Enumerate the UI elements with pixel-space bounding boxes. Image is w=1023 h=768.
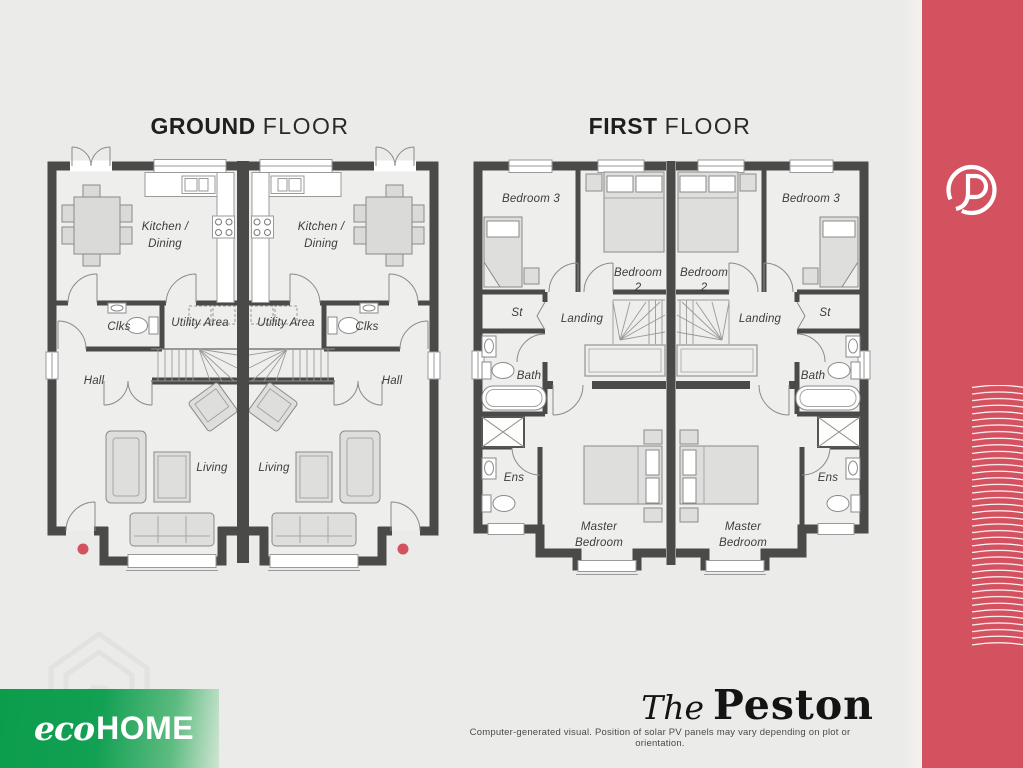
room-label-hall: Hall bbox=[84, 375, 105, 387]
ground-floor-right-unit bbox=[245, 147, 441, 571]
room-label-utility: Utility Area bbox=[257, 317, 315, 329]
room-label-kitchen: Kitchen / bbox=[298, 221, 346, 233]
room-label-master: Bedroom bbox=[719, 537, 767, 549]
room-label-kitchen: Dining bbox=[148, 238, 182, 250]
room-label-bath: Bath bbox=[801, 370, 825, 382]
disclaimer-text: Computer-generated visual. Position of s… bbox=[445, 727, 875, 749]
room-label-living: Living bbox=[196, 462, 228, 474]
first-floor-right-unit bbox=[676, 160, 870, 575]
party-wall bbox=[237, 161, 249, 563]
room-label-bedroom3: Bedroom 3 bbox=[782, 193, 840, 205]
marker-dot-right bbox=[398, 544, 409, 555]
room-label-landing: Landing bbox=[739, 313, 782, 325]
room-label-kitchen: Kitchen / bbox=[142, 221, 190, 233]
room-label-clks: Clks bbox=[107, 321, 130, 333]
ground-floor-plan: Kitchen / Dining Clks Utility Area Hall … bbox=[40, 140, 452, 580]
room-label-living: Living bbox=[258, 462, 290, 474]
developer-logo-icon bbox=[949, 167, 995, 213]
room-label-st: St bbox=[511, 307, 523, 319]
wave-pattern bbox=[972, 385, 1023, 648]
room-label-bedroom2: 2 bbox=[700, 282, 708, 294]
first-floor-plan: Bedroom 3 Bedroom 2 St Landing Bath Ens … bbox=[463, 140, 880, 580]
house-type-name-prefix: The bbox=[641, 688, 704, 727]
room-label-ens: Ens bbox=[818, 472, 838, 484]
room-label-master: Master bbox=[581, 521, 618, 533]
room-label-bedroom3: Bedroom 3 bbox=[502, 193, 560, 205]
marker-dot-left bbox=[78, 544, 89, 555]
house-type-name: The Peston bbox=[641, 681, 874, 729]
room-label-bedroom2: 2 bbox=[634, 282, 642, 294]
party-wall bbox=[667, 161, 676, 565]
room-label-clks: Clks bbox=[355, 321, 378, 333]
first-floor-title: FIRSTFLOOR bbox=[550, 112, 790, 140]
ground-floor-left-unit bbox=[46, 147, 242, 571]
room-label-ens: Ens bbox=[504, 472, 524, 484]
sidebar-fade bbox=[900, 0, 922, 768]
room-label-hall: Hall bbox=[382, 375, 403, 387]
first-floor-title-strong: FIRST bbox=[589, 113, 658, 139]
house-type-name-main: Peston bbox=[713, 681, 874, 729]
first-floor-left-unit bbox=[472, 160, 666, 575]
room-label-bath: Bath bbox=[517, 370, 541, 382]
eco-home-logo: ecoHOME bbox=[0, 689, 219, 768]
brand-sidebar bbox=[922, 0, 1023, 768]
room-label-bedroom2: Bedroom bbox=[680, 267, 728, 279]
ground-floor-title-strong: GROUND bbox=[151, 113, 256, 139]
sidebar-graphics bbox=[922, 0, 1023, 768]
ground-floor-title-light: FLOOR bbox=[263, 113, 350, 139]
room-label-master: Master bbox=[725, 521, 762, 533]
room-label-kitchen: Dining bbox=[304, 238, 338, 250]
room-label-master: Bedroom bbox=[575, 537, 623, 549]
eco-home-logo-home: HOME bbox=[96, 710, 194, 747]
room-label-st: St bbox=[819, 307, 831, 319]
brochure-page: GROUNDFLOOR FIRSTFLOOR bbox=[0, 0, 1023, 768]
first-floor-title-light: FLOOR bbox=[665, 113, 752, 139]
room-label-landing: Landing bbox=[561, 313, 604, 325]
ground-floor-title: GROUNDFLOOR bbox=[130, 112, 370, 140]
room-label-utility: Utility Area bbox=[171, 317, 229, 329]
room-label-bedroom2: Bedroom bbox=[614, 267, 662, 279]
eco-home-logo-eco: eco bbox=[34, 709, 94, 748]
